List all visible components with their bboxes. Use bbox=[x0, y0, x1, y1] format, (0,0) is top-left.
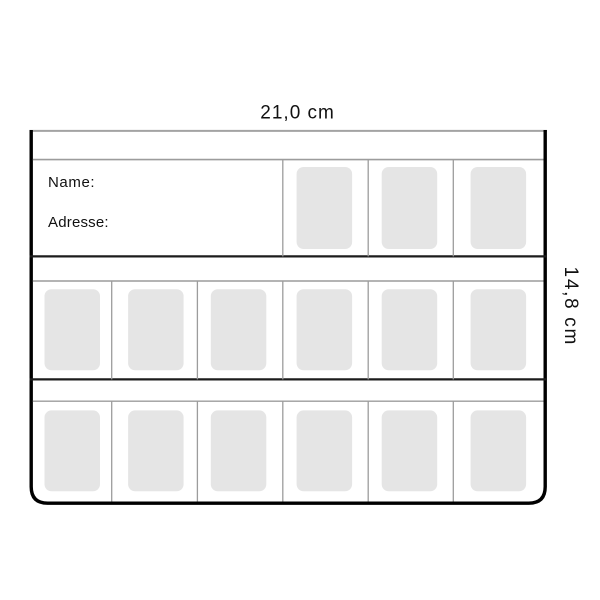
svg-text:Adresse:: Adresse: bbox=[48, 214, 109, 231]
svg-text:21,0 cm: 21,0 cm bbox=[260, 103, 335, 124]
svg-text:Name:: Name: bbox=[48, 174, 95, 191]
svg-text:14,8 cm: 14,8 cm bbox=[560, 267, 581, 347]
